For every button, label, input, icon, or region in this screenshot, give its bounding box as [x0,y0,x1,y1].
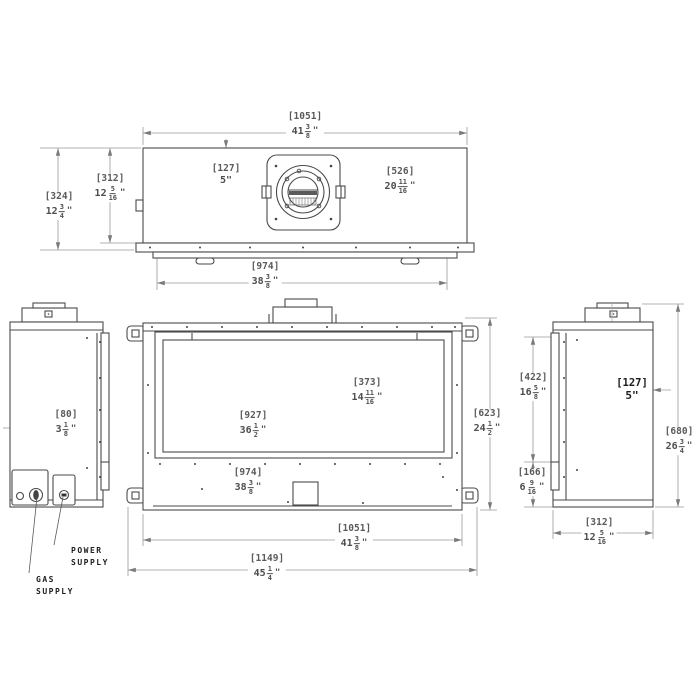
dim-front-flange-974: [974] 3838" [232,468,265,496]
power-supply-label: POWERSUPPLY [71,545,109,568]
side-clip [136,200,143,211]
dim-side-depth-312: [312] 12516" [582,518,617,546]
left-side-view [10,303,109,573]
dim-front-overall-width-1149: [1149] 4514" [248,554,286,582]
vent-stub-left [22,303,77,322]
junction-box [293,482,318,505]
vent-stub-right [585,303,640,322]
dim-side-overall-height-680: [680] 2634" [663,427,696,455]
dim-front-width-1051: [1051] 4138" [335,524,373,552]
left-nailing-flange [101,333,109,490]
dim-side-flange-bottom-166: [166] 6916" [516,468,549,496]
gas-supply-label: GASSUPPLY [36,574,74,597]
dim-side-flange-height-422: [422] 1658" [517,373,550,401]
right-nailing-flange [551,333,559,490]
front-lip [153,252,457,258]
dim-top-flue-center-526: [526] 201116" [383,167,418,195]
flue-collar [262,155,345,230]
power-access-panel [53,475,75,505]
dim-left-gas-offset-80: [80] 318" [53,410,80,438]
lip-tab [196,258,214,264]
collar-baffle [289,191,317,195]
dim-front-height-623: [623] 2412" [471,409,504,437]
right-side-body [553,322,653,507]
front-view [127,299,478,510]
dim-top-depth-312: [312] 12516" [93,174,128,202]
dim-top-flange-974: [974] 3838" [249,262,282,290]
dim-top-width-1051: [1051] 4138" [286,112,324,140]
right-side-view [551,303,653,507]
dim-front-glass-height-373: [373] 141116" [350,378,385,406]
gas-access-panel [12,470,48,505]
dimension-drawing: [1051] 4138" [127] 5" [526] 201116" [324… [0,0,700,700]
top-view [136,148,474,264]
vent-stub-front [269,299,336,323]
callout-leaders [29,497,63,573]
dim-side-flue-offset-127: [127] 5" [614,378,650,402]
dim-top-depth-324: [324] 1234" [43,192,76,220]
front-strip [136,243,474,252]
drawing-canvas [0,0,700,700]
lip-tab [401,258,419,264]
dim-top-flue-offset-127: [127] 5" [210,164,243,186]
dim-front-glass-width-927: [927] 3612" [237,411,270,439]
